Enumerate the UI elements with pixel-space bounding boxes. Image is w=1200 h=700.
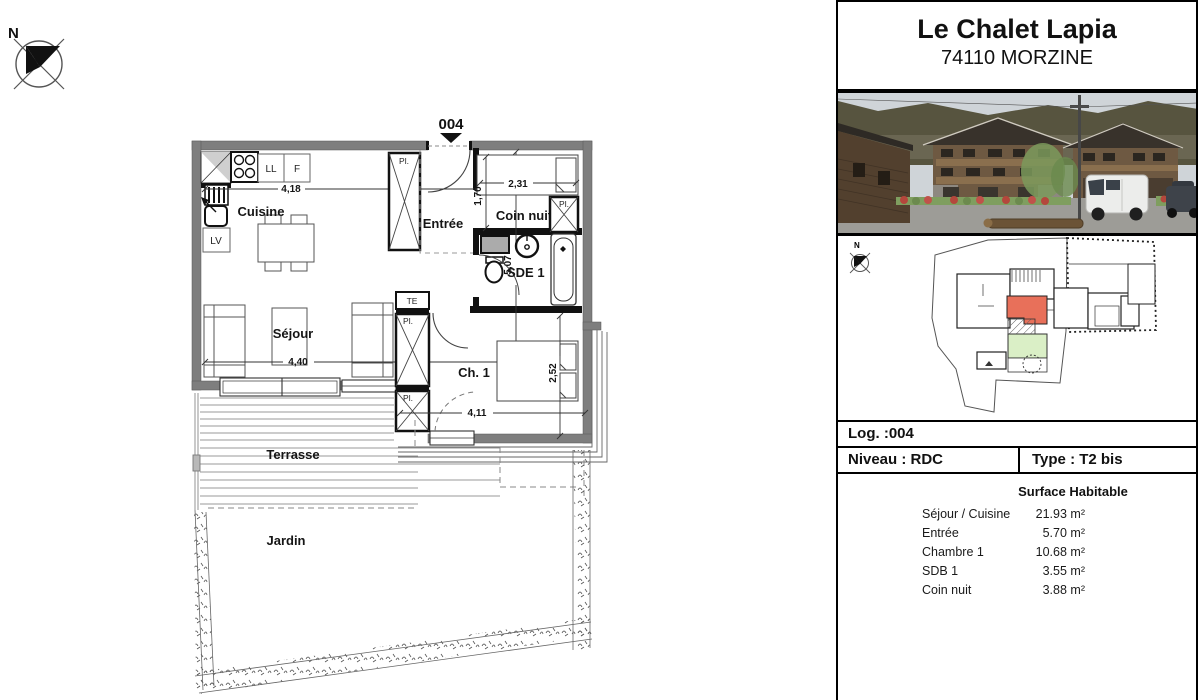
bedroom-bed-icon: [497, 341, 578, 401]
entry-closet: Pl.: [389, 153, 420, 250]
surface-room-label: Séjour / Cuisine: [922, 505, 1030, 524]
dining-table-icon: [258, 215, 314, 271]
unit-garden-green: [1008, 334, 1047, 358]
lot-number-label: Log. :004: [848, 425, 914, 442]
bedroom-label: Ch. 1: [458, 365, 490, 380]
windows: [220, 378, 474, 445]
entry-boundary-dashed: [420, 150, 473, 253]
electrical-panel-label: TE: [407, 296, 418, 306]
entrance-arrow-icon: [440, 133, 462, 143]
surface-row: Coin nuit 3.88 m²: [838, 581, 1196, 600]
surface-room-label: Coin nuit: [922, 581, 1030, 600]
coin-nuit-label: Coin nuit: [496, 208, 553, 223]
surface-room-label: Entrée: [922, 524, 1030, 543]
unit-terrace-hatch: [1008, 319, 1035, 334]
siteplan-compass-n: N: [854, 241, 860, 250]
surface-area-value: 5.70 m²: [1030, 524, 1085, 543]
photo-illustration: [838, 93, 1196, 233]
surface-room-label: Chambre 1: [922, 543, 1030, 562]
lot-number-row: Log. :004: [838, 422, 1196, 448]
site-plan: N: [838, 233, 1196, 422]
surface-area-value: 21.93 m²: [1030, 505, 1085, 524]
compass-n-label: N: [8, 25, 19, 42]
surface-table-header: Surface Habitable: [988, 484, 1158, 499]
dim-252-label: 2,52: [548, 363, 559, 383]
dim-418-label: 4,18: [281, 184, 301, 195]
surface-table: Surface Habitable Séjour / Cuisine 21.93…: [838, 484, 1196, 600]
surface-row: Chambre 1 10.68 m²: [838, 543, 1196, 562]
unit-entrance-marker: 004: [428, 116, 470, 192]
dishwasher-label: LV: [210, 236, 222, 247]
dim-440-label: 4,40: [288, 357, 308, 368]
surface-area-value: 3.88 m²: [1030, 581, 1085, 600]
dim-231-label: 2,31: [508, 179, 528, 190]
washing-machine-label: LL: [265, 164, 277, 175]
sink-unit-icon: [201, 185, 228, 226]
coin-nuit-closet: Pl.: [550, 197, 578, 232]
level-cell: Niveau : RDC: [838, 448, 1020, 472]
bathroom-label: SDE 1: [507, 265, 545, 280]
closet-label: Pl.: [403, 316, 413, 326]
dim-411-label: 4,11: [468, 408, 487, 419]
entry-label: Entrée: [423, 216, 463, 231]
surface-area-value: 10.68 m²: [1030, 543, 1085, 562]
surface-area-value: 3.55 m²: [1030, 562, 1085, 581]
chalet-photo: [838, 93, 1196, 233]
surface-room-label: SDB 1: [922, 562, 1030, 581]
unit-number-label: 004: [438, 116, 464, 133]
dim-170-label: 1,70: [473, 186, 484, 206]
title-block: Le Chalet Lapia 74110 MORZINE: [838, 0, 1196, 93]
info-panel: Le Chalet Lapia 74110 MORZINE: [836, 0, 1198, 700]
surface-row: Séjour / Cuisine 21.93 m²: [838, 505, 1196, 524]
siteplan-compass-icon: N: [850, 241, 870, 273]
photo-log: [984, 219, 1084, 229]
stove-icon: [231, 152, 258, 182]
photo-tree: [1051, 157, 1079, 197]
vanity-counter: [481, 236, 509, 253]
sofa-icon: [204, 305, 245, 377]
project-subtitle: 74110 MORZINE: [838, 47, 1196, 70]
level-type-row: Niveau : RDC Type : T2 bis: [838, 448, 1196, 474]
closet-label: Pl.: [403, 393, 413, 403]
bathtub-icon: [551, 234, 576, 305]
entrance-door-swing: [428, 150, 470, 192]
type-cell: Type : T2 bis: [1020, 448, 1196, 472]
closet-label: Pl.: [399, 156, 409, 166]
fridge-label: F: [294, 164, 300, 175]
kitchen-label: Cuisine: [238, 204, 285, 219]
surface-row: Entrée 5.70 m²: [838, 524, 1196, 543]
utility-closet-column: TE Pl. Pl.: [396, 292, 429, 431]
floor-plan-drawing: N 004: [0, 0, 836, 700]
closet-label: Pl.: [559, 199, 569, 209]
site-plan-drawing: N: [838, 236, 1198, 420]
sofa-icon: [352, 303, 393, 377]
garden-label: Jardin: [266, 533, 305, 548]
terrace-edge-left: [193, 393, 200, 510]
floorplan-sheet: N 004: [0, 0, 1200, 700]
north-compass-icon: N: [8, 25, 64, 89]
bedroom-door-swing: [433, 313, 468, 348]
washbasin-icon: [516, 235, 538, 257]
living-room-label: Séjour: [273, 326, 313, 341]
project-title: Le Chalet Lapia: [838, 14, 1196, 45]
door-jamb: [469, 141, 472, 150]
terrace-label: Terrasse: [266, 447, 319, 462]
surface-row: SDB 1 3.55 m²: [838, 562, 1196, 581]
terrace-decking: [200, 398, 500, 504]
dim-418: [202, 186, 519, 192]
building-footprint: [957, 264, 1155, 369]
